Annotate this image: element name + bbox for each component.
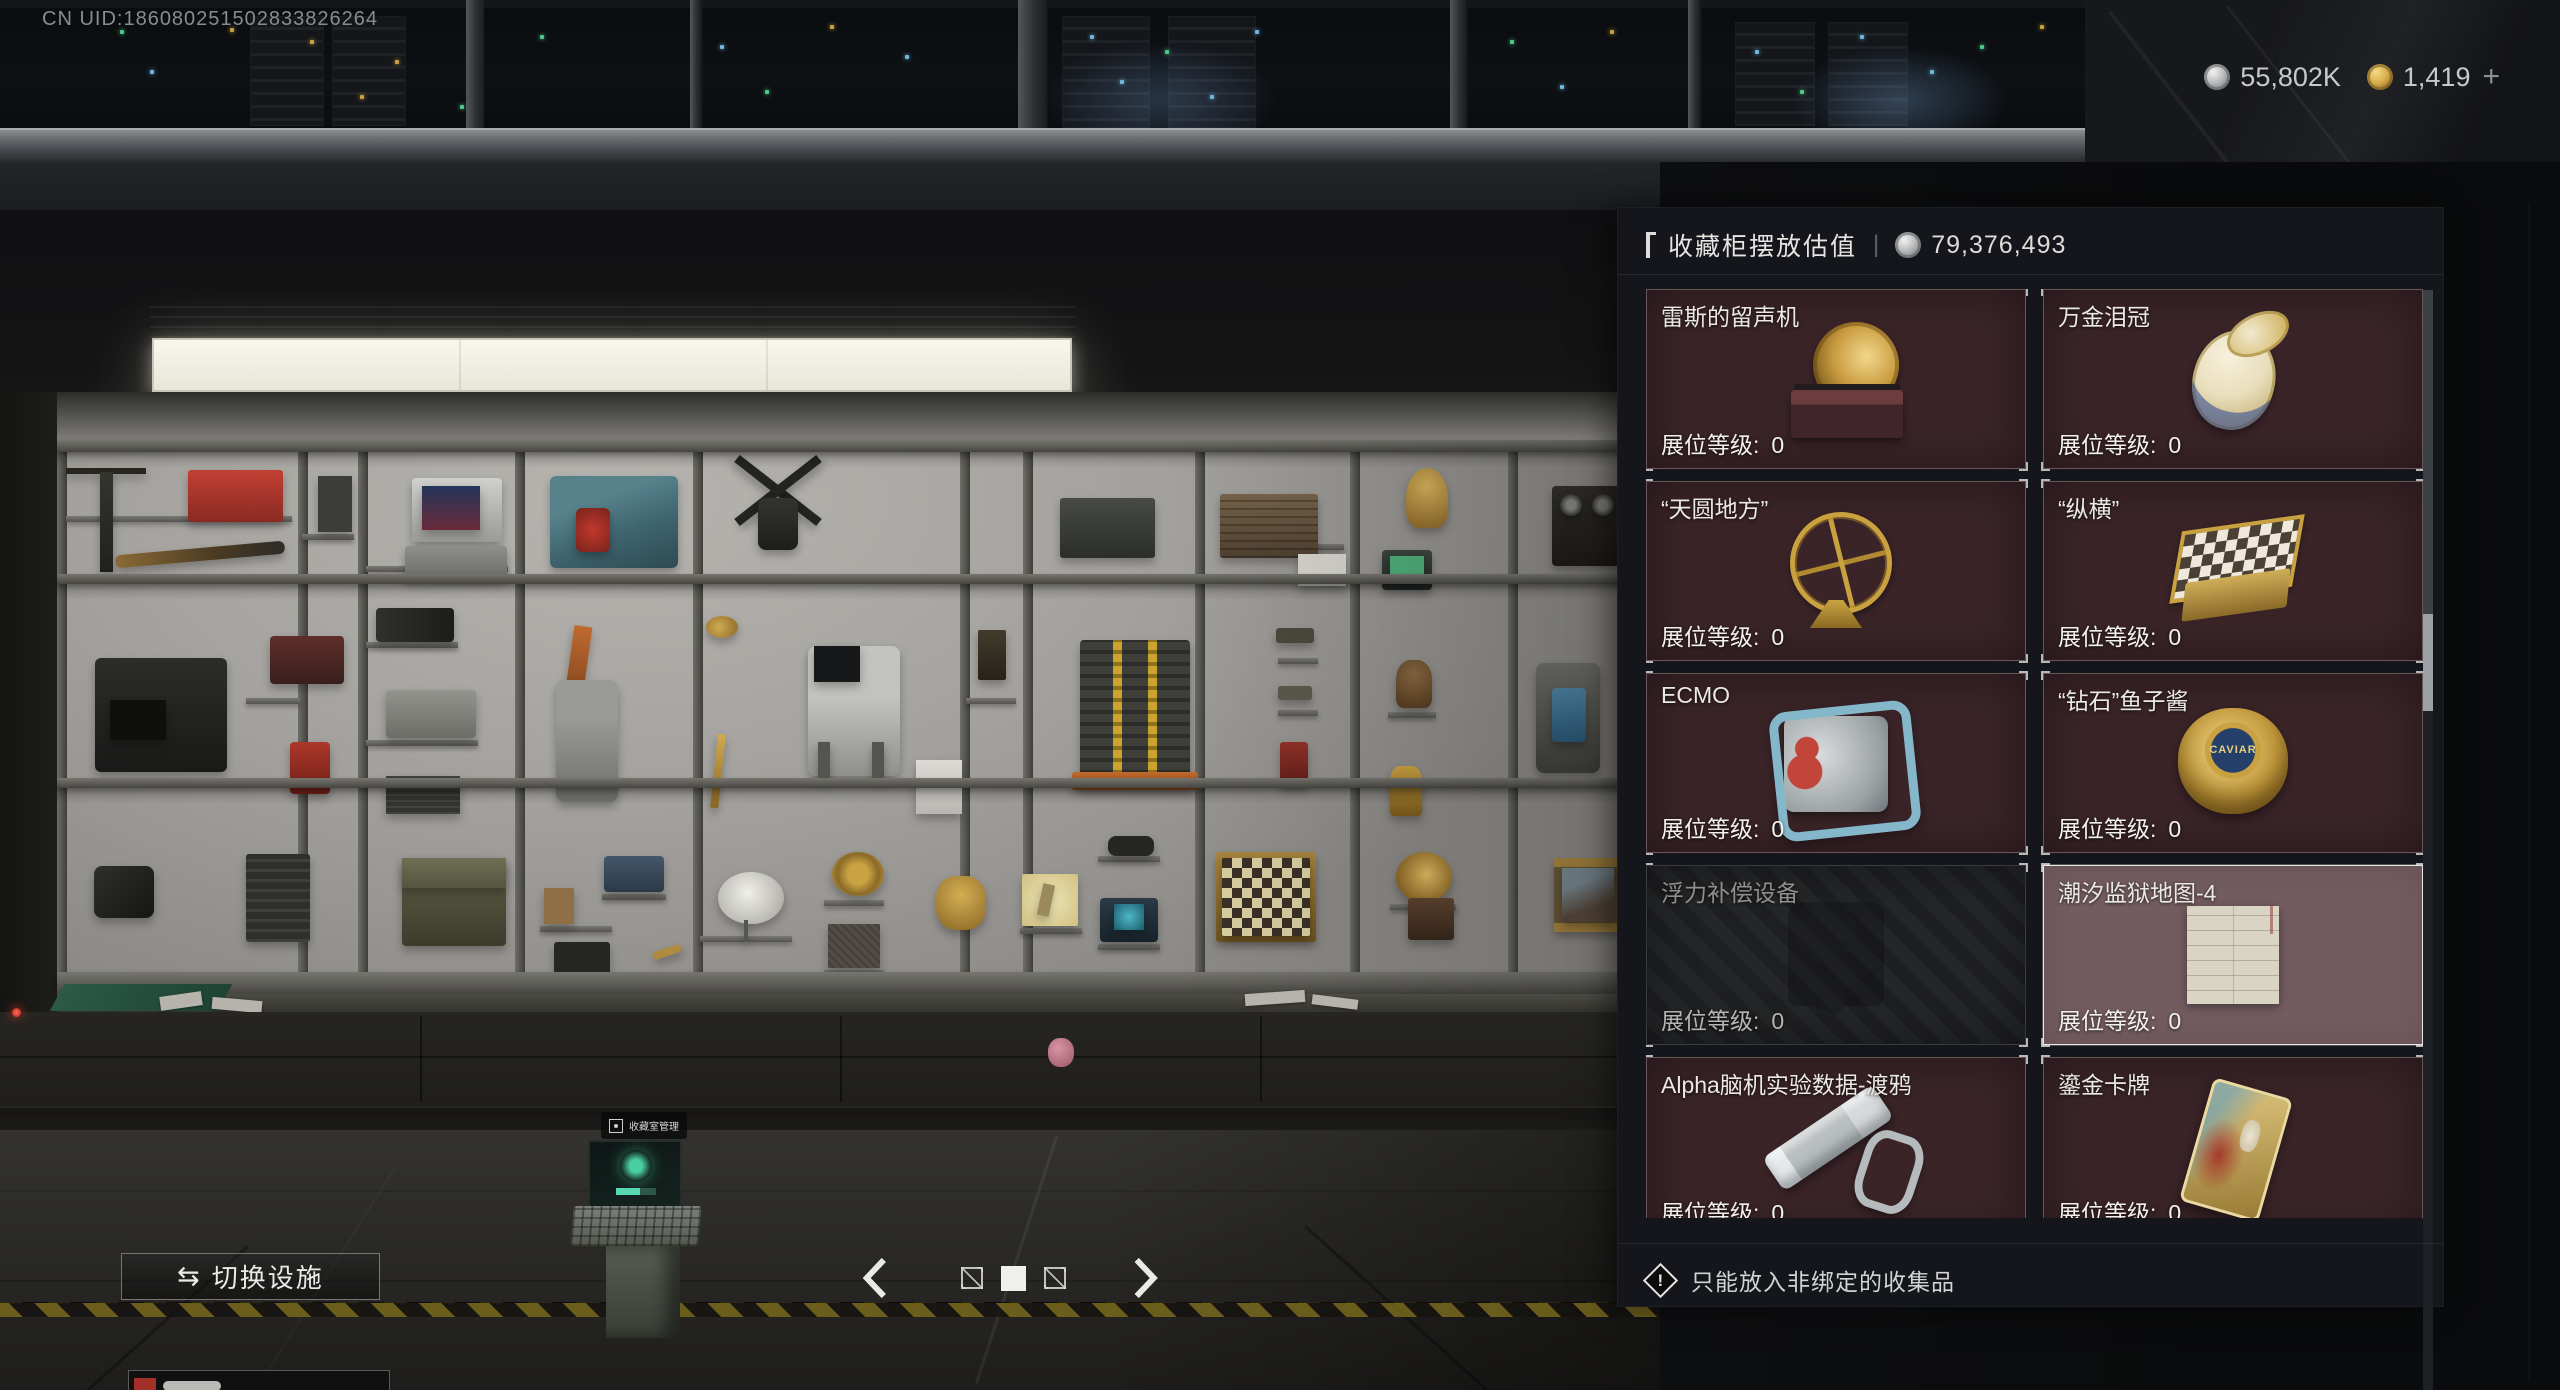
card-level: 展位等级:0 xyxy=(2058,1194,2181,1218)
map-art xyxy=(2044,900,2422,1018)
status-led xyxy=(1610,30,1614,34)
corner-bracket xyxy=(2019,462,2028,471)
corner-bracket xyxy=(2041,654,2050,663)
corner-bracket xyxy=(2041,863,2050,872)
panel-footer: ! 只能放入非绑定的收集品 xyxy=(1648,1258,1955,1302)
level-value: 0 xyxy=(1771,816,1784,842)
window-mullion xyxy=(1450,0,1466,130)
window-mullion xyxy=(690,0,701,130)
corner-bracket xyxy=(2416,1038,2423,1047)
status-led xyxy=(1930,70,1934,74)
add-currency-button[interactable]: + xyxy=(2482,60,2500,94)
corner-bracket xyxy=(2041,846,2050,855)
card-title: 雷斯的留声机 xyxy=(1661,298,1799,332)
silver-currency: 55,802K xyxy=(2204,62,2341,93)
corner-bracket xyxy=(2019,654,2028,663)
card-title: 鎏金卡牌 xyxy=(2058,1066,2150,1100)
server-rack xyxy=(250,16,324,126)
card-level: 展位等级:0 xyxy=(2058,426,2181,460)
status-led xyxy=(1510,40,1514,44)
collection-panel: 收藏柜摆放估值 | 79,376,493 雷斯的留声机 展位等级:0 万金泪冠 … xyxy=(1617,207,2444,1307)
laptop-tooltip-label: 收藏室管理 xyxy=(629,1118,679,1133)
level-label: 展位等级: xyxy=(2058,432,2156,458)
status-led xyxy=(460,105,464,109)
card-level: 展位等级:0 xyxy=(2058,618,2181,652)
caviar-label: CAVIAR xyxy=(2209,744,2256,756)
collection-card[interactable]: “天圆地方” 展位等级:0 xyxy=(1646,481,2026,661)
panel-title: 收藏柜摆放估值 xyxy=(1668,227,1857,263)
collection-card[interactable]: Alpha脑机实验数据-渡鸦 展位等级:0 xyxy=(1646,1057,2026,1218)
status-led xyxy=(1090,35,1094,39)
prev-page-button[interactable] xyxy=(860,1255,889,1301)
collection-card[interactable]: “纵横” 展位等级:0 xyxy=(2043,481,2423,661)
status-led xyxy=(1860,35,1864,39)
display-wall xyxy=(57,440,1650,994)
red-indicator-led xyxy=(12,1008,21,1017)
status-led xyxy=(720,45,724,49)
corner-bracket xyxy=(2416,654,2423,663)
silver-coin-icon xyxy=(2204,64,2230,90)
laptop-screen xyxy=(588,1140,682,1208)
level-value: 0 xyxy=(2168,624,2181,650)
corner-bracket xyxy=(2416,1055,2423,1064)
corner-bracket xyxy=(1646,289,1653,296)
level-label: 展位等级: xyxy=(1661,1008,1759,1034)
level-value: 0 xyxy=(2168,1008,2181,1034)
window-mullion xyxy=(1688,0,1700,130)
level-value: 0 xyxy=(1771,1200,1784,1218)
gilded-card-art xyxy=(2044,1092,2422,1210)
status-led xyxy=(1165,50,1169,54)
page-indicator-3[interactable] xyxy=(1044,1267,1066,1289)
pink-plush xyxy=(1048,1038,1074,1067)
status-led xyxy=(540,35,544,39)
status-led xyxy=(310,40,314,44)
corner-bracket xyxy=(2416,462,2423,471)
corner-bracket xyxy=(2019,671,2028,680)
gray-pill xyxy=(163,1381,221,1390)
silver-currency-value: 55,802K xyxy=(2240,62,2341,93)
level-label: 展位等级: xyxy=(2058,1008,2156,1034)
corner-bracket xyxy=(2416,846,2423,855)
bottom-edge-widget xyxy=(128,1370,390,1390)
panel-scrollbar[interactable] xyxy=(2423,290,2433,1390)
corner-bracket xyxy=(1646,671,1653,680)
status-led xyxy=(360,95,364,99)
laptop-progress-bar xyxy=(616,1188,656,1195)
status-led xyxy=(830,25,834,29)
status-led xyxy=(150,70,154,74)
corner-bracket xyxy=(1646,479,1653,488)
bracket-icon xyxy=(1646,232,1656,258)
panel-total-value: 79,376,493 xyxy=(1931,231,2066,260)
corner-bracket xyxy=(2019,289,2028,296)
scrollbar-track xyxy=(2423,290,2433,614)
platform-step xyxy=(0,1106,1660,1130)
scrollbar-thumb[interactable] xyxy=(2423,614,2433,711)
level-value: 0 xyxy=(2168,432,2181,458)
window-section xyxy=(703,8,1018,128)
window-mullion xyxy=(466,0,484,130)
collection-card[interactable]: CAVIAR “钻石”鱼子酱 展位等级:0 xyxy=(2043,673,2423,853)
collection-card[interactable]: 潮汐监狱地图-4 展位等级:0 xyxy=(2043,865,2423,1045)
level-value: 0 xyxy=(1771,432,1784,458)
level-value: 0 xyxy=(1771,1008,1784,1034)
corner-bracket xyxy=(2019,863,2028,872)
usb-drive-art xyxy=(1647,1092,2025,1210)
corner-bracket xyxy=(2416,479,2423,488)
page-navigation xyxy=(860,1252,1160,1304)
card-level: 展位等级:0 xyxy=(1661,1002,1784,1036)
scrollbar-track xyxy=(2423,711,2433,1390)
panel-header: 收藏柜摆放估值 | 79,376,493 xyxy=(1646,224,2066,266)
swap-icon: ⇆ xyxy=(177,1263,200,1290)
level-label: 展位等级: xyxy=(1661,1200,1759,1218)
status-led xyxy=(905,55,909,59)
gold-currency-value: 1,419 xyxy=(2403,62,2471,93)
status-led xyxy=(765,90,769,94)
status-led xyxy=(1755,50,1759,54)
green-mat xyxy=(50,984,232,1011)
level-label: 展位等级: xyxy=(2058,624,2156,650)
game-screen: CN UID:186080251502833826264 55,802K 1,4… xyxy=(0,0,2560,1390)
card-title: ECMO xyxy=(1661,682,1730,709)
status-led xyxy=(1980,45,1984,49)
card-title: “天圆地方” xyxy=(1661,490,1768,524)
header-separator: | xyxy=(1873,231,1879,259)
left-wall-edge xyxy=(0,392,57,1118)
corner-bracket xyxy=(2416,863,2423,872)
switch-facility-label: 切换设施 xyxy=(212,1258,324,1295)
card-title: “钻石”鱼子酱 xyxy=(2058,682,2188,716)
gold-currency: 1,419 + xyxy=(2367,60,2500,94)
card-level: 展位等级:0 xyxy=(2058,810,2181,844)
switch-facility-button[interactable]: ⇆ 切换设施 xyxy=(121,1253,380,1300)
level-label: 展位等级: xyxy=(1661,816,1759,842)
header-divider xyxy=(1618,274,2443,275)
laptop-tooltip: 收藏室管理 xyxy=(601,1112,687,1139)
corner-bracket xyxy=(2019,1055,2028,1064)
window-section xyxy=(1468,8,1688,128)
caviar-art: CAVIAR xyxy=(2044,708,2422,826)
level-label: 展位等级: xyxy=(1661,624,1759,650)
card-level: 展位等级:0 xyxy=(1661,1194,1784,1218)
card-level: 展位等级:0 xyxy=(1661,810,1784,844)
corner-bracket xyxy=(2019,846,2028,855)
corner-bracket xyxy=(2041,289,2050,296)
crown-egg-art xyxy=(2044,324,2422,442)
armillary-art xyxy=(1647,516,2025,634)
card-title: 浮力补偿设备 xyxy=(1661,874,1799,908)
card-title: Alpha脑机实验数据-渡鸦 xyxy=(1661,1066,1911,1100)
laptop-logo-glow xyxy=(620,1150,652,1182)
window-section xyxy=(484,8,690,128)
corner-bracket xyxy=(2041,1055,2050,1064)
collection-card[interactable]: 万金泪冠 展位等级:0 xyxy=(2043,289,2423,469)
level-label: 展位等级: xyxy=(2058,1200,2156,1218)
corner-bracket xyxy=(1646,1055,1653,1064)
page-indicator-2[interactable] xyxy=(1001,1266,1026,1291)
card-title: 万金泪冠 xyxy=(2058,298,2150,332)
red-chip xyxy=(134,1378,156,1390)
corner-bracket xyxy=(2041,1038,2050,1047)
corner-bracket xyxy=(2041,479,2050,488)
window-mullion xyxy=(1018,0,1046,130)
level-label: 展位等级: xyxy=(1661,432,1759,458)
level-value: 0 xyxy=(2168,816,2181,842)
collection-card[interactable]: 雷斯的留声机 展位等级:0 xyxy=(1646,289,2026,469)
corner-bracket xyxy=(1646,654,1653,663)
currency-bar: 55,802K 1,419 + xyxy=(2204,60,2500,94)
hazard-stripe xyxy=(0,1302,1660,1317)
corner-bracket xyxy=(2019,1038,2028,1047)
page-indicator-1[interactable] xyxy=(961,1267,983,1289)
footer-divider xyxy=(1618,1243,2443,1244)
counter-top xyxy=(57,994,1650,1012)
wall-top-shadow xyxy=(57,392,1650,440)
corner-bracket xyxy=(1646,462,1653,471)
status-led xyxy=(1560,85,1564,89)
silver-coin-icon xyxy=(1895,232,1921,258)
page-indicators xyxy=(961,1266,1066,1291)
gramophone-art xyxy=(1647,324,2025,442)
status-led xyxy=(395,60,399,64)
corner-bracket xyxy=(2416,289,2423,296)
card-level: 展位等级:0 xyxy=(1661,426,1784,460)
status-led xyxy=(1255,30,1259,34)
alert-icon: ! xyxy=(1643,1262,1678,1297)
collection-card[interactable]: 浮力补偿设备 展位等级:0 xyxy=(1646,865,2026,1045)
level-value: 0 xyxy=(2168,1200,2181,1218)
corner-bracket xyxy=(1646,1038,1653,1047)
status-led xyxy=(2040,25,2044,29)
level-value: 0 xyxy=(1771,624,1784,650)
cabinet-icon xyxy=(609,1119,623,1133)
corner-bracket xyxy=(2416,671,2423,680)
footer-note: 只能放入非绑定的收集品 xyxy=(1691,1263,1955,1297)
server-rack xyxy=(332,16,406,126)
level-label: 展位等级: xyxy=(2058,816,2156,842)
ecmo-art xyxy=(1647,708,2025,826)
status-led xyxy=(1210,95,1214,99)
collection-card[interactable]: 鎏金卡牌 展位等级:0 xyxy=(2043,1057,2423,1218)
card-title: 潮汐监狱地图-4 xyxy=(2058,874,2216,908)
laptop-keyboard xyxy=(570,1206,701,1246)
card-level: 展位等级:0 xyxy=(2058,1002,2181,1036)
corner-bracket xyxy=(2019,479,2028,488)
corner-bracket xyxy=(1646,846,1653,855)
collection-grid: 雷斯的留声机 展位等级:0 万金泪冠 展位等级:0 “天圆地方” 展位等级:0 … xyxy=(1646,289,2423,1218)
bcd-art xyxy=(1647,900,2025,1018)
corner-bracket xyxy=(2041,671,2050,680)
ceiling-light-panel xyxy=(152,338,1072,392)
uid-label: CN UID:186080251502833826264 xyxy=(42,8,378,31)
card-title: “纵横” xyxy=(2058,490,2119,524)
collection-card[interactable]: ECMO 展位等级:0 xyxy=(1646,673,2026,853)
card-level: 展位等级:0 xyxy=(1661,618,1784,652)
corner-bracket xyxy=(2041,462,2050,471)
chess-box-art xyxy=(2044,516,2422,634)
corner-bracket xyxy=(1646,863,1653,872)
status-led xyxy=(1800,90,1804,94)
counter-front xyxy=(0,1012,1660,1106)
status-led xyxy=(1120,80,1124,84)
gold-coin-icon xyxy=(2367,64,2393,90)
next-page-button[interactable] xyxy=(1132,1255,1161,1301)
ceiling-beam xyxy=(0,128,2090,164)
laptop-pedestal xyxy=(606,1246,680,1338)
